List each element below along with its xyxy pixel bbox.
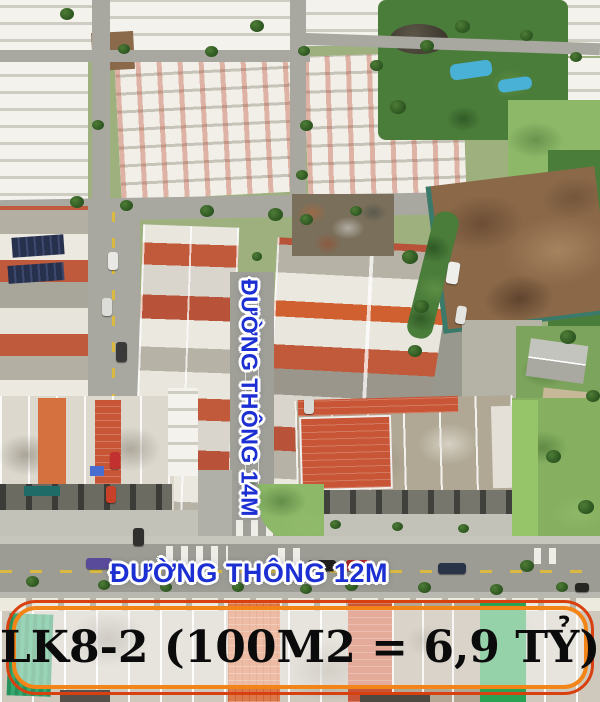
tree bbox=[98, 580, 110, 590]
car bbox=[108, 252, 118, 270]
tree bbox=[300, 120, 313, 131]
tree bbox=[586, 390, 600, 402]
tree bbox=[520, 560, 534, 572]
tree bbox=[578, 500, 594, 514]
tree bbox=[118, 44, 130, 54]
tree bbox=[330, 520, 341, 529]
car bbox=[110, 452, 120, 469]
tree bbox=[298, 46, 310, 56]
tree bbox=[268, 208, 283, 221]
tree bbox=[296, 170, 308, 180]
price-banner-text: LK8-2 (100M2 = 6,9 TỶ) bbox=[0, 622, 600, 673]
tree bbox=[560, 330, 576, 344]
tree bbox=[390, 100, 406, 114]
tree bbox=[570, 52, 582, 62]
car bbox=[106, 486, 116, 503]
aerial-photo: ĐƯỜNG THÔNG 14M ĐƯỜNG THÔNG 12M LK8-2 (1… bbox=[0, 0, 600, 702]
car bbox=[445, 261, 460, 285]
tree bbox=[250, 20, 264, 32]
tree bbox=[92, 120, 104, 130]
price-banner: LK8-2 (100M2 = 6,9 TỶ) bbox=[6, 600, 594, 695]
tree bbox=[414, 300, 429, 313]
decor-layer bbox=[0, 0, 600, 702]
tree bbox=[420, 40, 434, 52]
road-label-14m: ĐƯỜNG THÔNG 14M bbox=[236, 279, 263, 517]
car bbox=[86, 558, 112, 569]
tree bbox=[392, 522, 403, 531]
car bbox=[133, 528, 144, 546]
tree bbox=[60, 8, 74, 20]
tree bbox=[350, 206, 362, 216]
tree bbox=[455, 20, 470, 33]
tree bbox=[408, 345, 422, 357]
tree bbox=[556, 582, 568, 592]
tree bbox=[120, 200, 133, 211]
tree bbox=[300, 214, 313, 225]
car bbox=[102, 298, 112, 316]
car bbox=[116, 342, 127, 362]
car bbox=[438, 563, 466, 574]
price-banner-inner: LK8-2 (100M2 = 6,9 TỶ) bbox=[12, 606, 588, 689]
tree bbox=[490, 584, 503, 595]
tree bbox=[200, 205, 214, 217]
tree bbox=[458, 524, 469, 533]
tree bbox=[205, 46, 218, 57]
tree bbox=[520, 30, 533, 41]
road-label-12m: ĐƯỜNG THÔNG 12M bbox=[110, 558, 388, 589]
car bbox=[455, 305, 468, 324]
car bbox=[575, 583, 589, 592]
tree bbox=[252, 252, 262, 261]
tree bbox=[402, 250, 418, 264]
tree bbox=[26, 576, 39, 587]
tree bbox=[370, 60, 383, 71]
tree bbox=[418, 582, 431, 593]
car bbox=[304, 398, 314, 414]
tree bbox=[70, 196, 84, 208]
tree bbox=[546, 450, 561, 463]
